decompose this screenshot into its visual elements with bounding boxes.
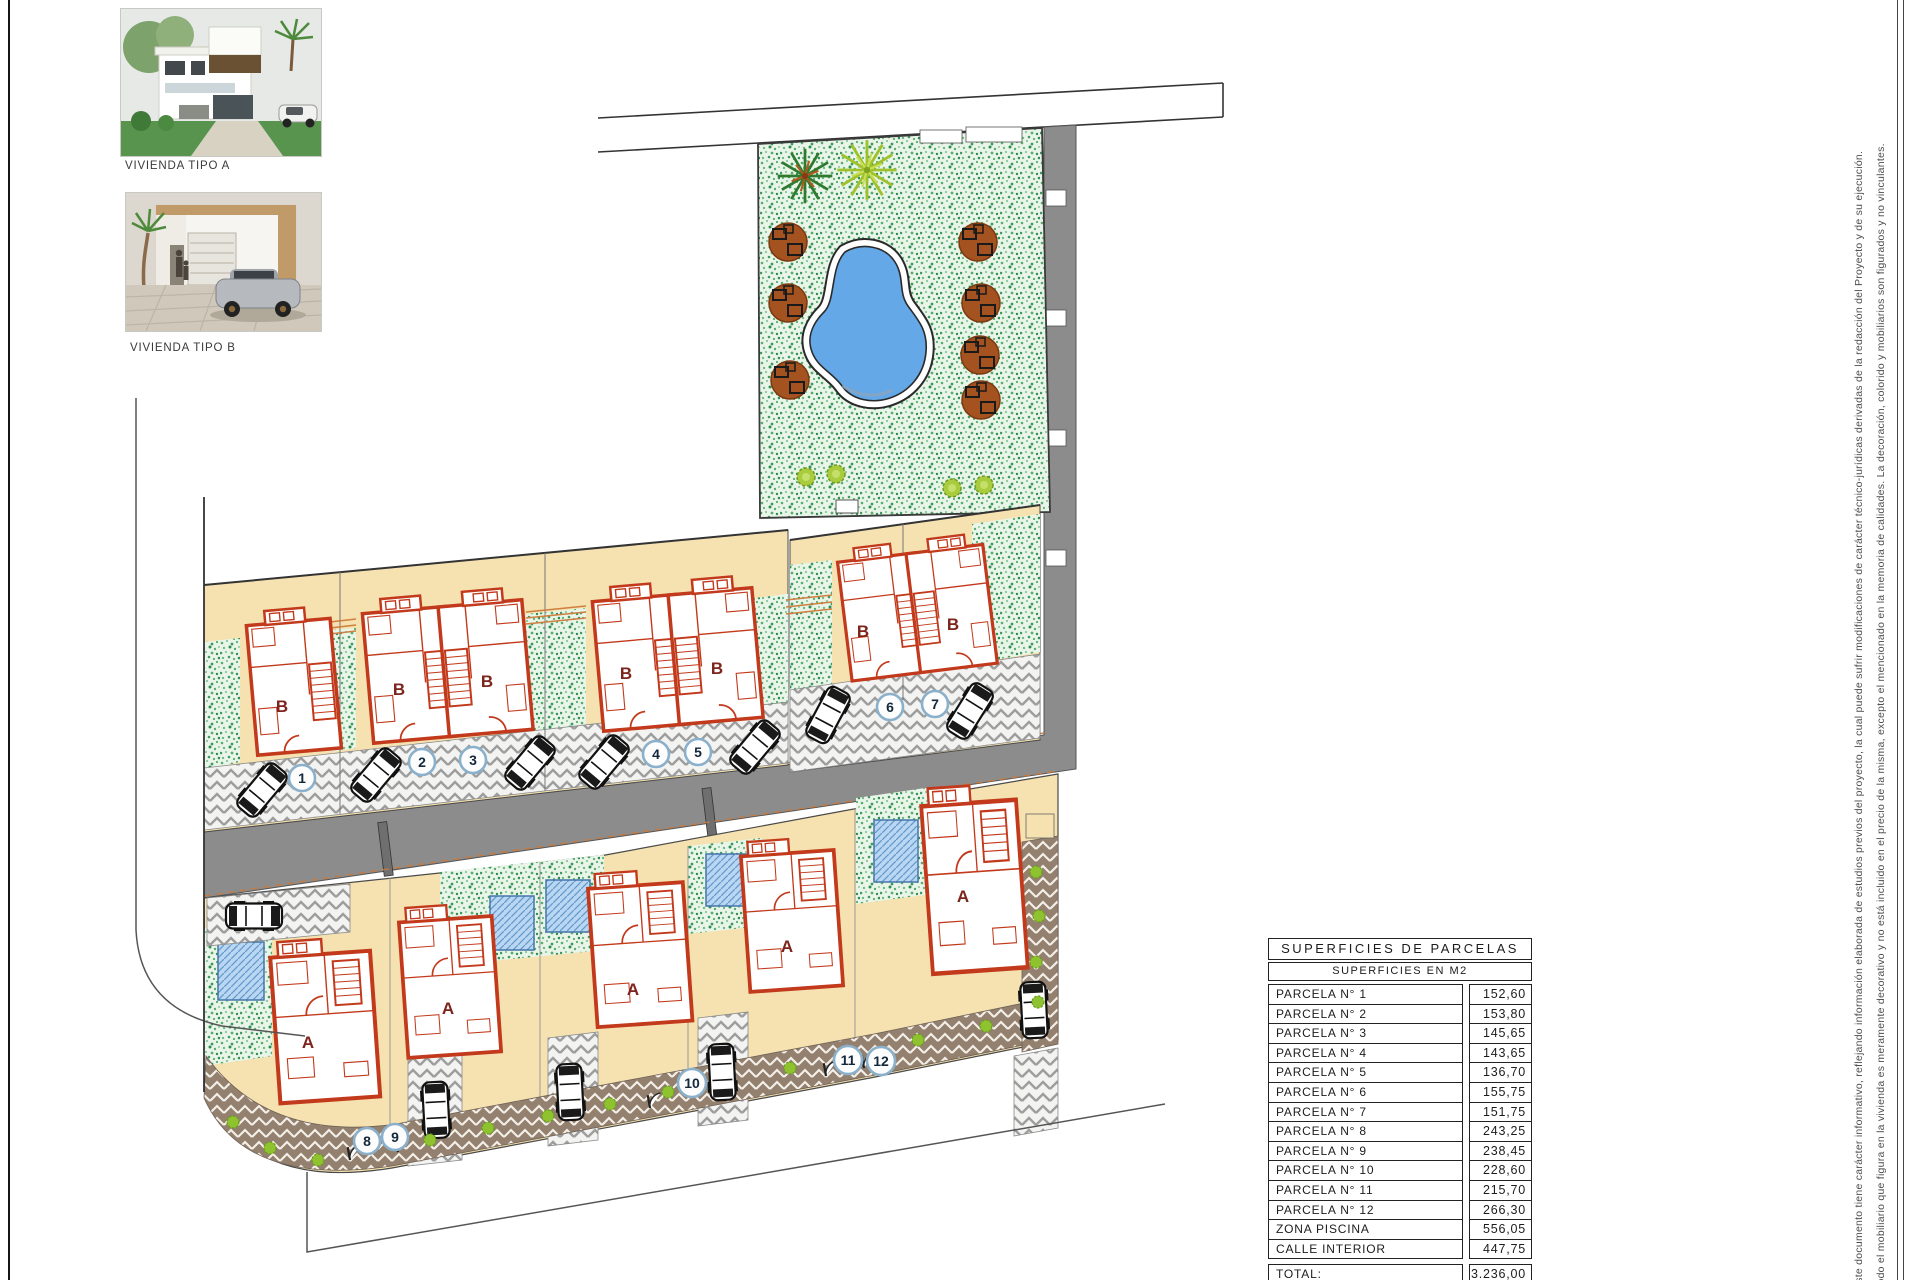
svg-text:2: 2 <box>418 754 426 770</box>
row-label: PARCELA N° 10 <box>1268 1160 1463 1181</box>
row-value: 556,05 <box>1469 1219 1532 1240</box>
plot-number-5: 5 <box>685 739 711 765</box>
lounge-seat-icon <box>769 223 807 261</box>
site-plan: B B B B B B B A A A A A 1 2 3 4 5 6 7 8 … <box>0 0 1920 1280</box>
car-icon <box>420 1081 453 1138</box>
table-row: ZONA PISCINA556,05 <box>1268 1219 1532 1240</box>
plot-number-6: 6 <box>877 694 903 720</box>
row-label: PARCELA N° 8 <box>1268 1121 1463 1142</box>
row-label: PARCELA N° 2 <box>1268 1004 1463 1025</box>
row-label: PARCELA N° 5 <box>1268 1062 1463 1083</box>
house-label-b: B <box>857 622 869 641</box>
car-icon <box>226 901 282 931</box>
row-value: 136,70 <box>1469 1062 1532 1083</box>
table-row: PARCELA N° 4143,65 <box>1268 1043 1532 1064</box>
row-value: 266,30 <box>1469 1200 1532 1221</box>
svg-text:1: 1 <box>298 770 306 786</box>
svg-text:4: 4 <box>652 746 660 762</box>
lounge-seat-icon <box>962 284 1000 322</box>
house-b-parcel-1 <box>245 605 341 755</box>
row-label: PARCELA N° 4 <box>1268 1043 1463 1064</box>
lounge-seat-icon <box>769 284 807 322</box>
row-label: PARCELA N° 9 <box>1268 1141 1463 1162</box>
house-label-b: B <box>393 680 405 699</box>
row-label: PARCELA N° 7 <box>1268 1102 1463 1123</box>
house-label-b: B <box>711 659 723 678</box>
total-value: 3.236,00 <box>1469 1264 1532 1280</box>
row-value: 215,70 <box>1469 1180 1532 1201</box>
row-value: 155,75 <box>1469 1082 1532 1103</box>
svg-text:8: 8 <box>363 1133 371 1149</box>
plot-number-2: 2 <box>409 749 435 775</box>
shrub-icon <box>797 468 815 486</box>
house-label-b: B <box>620 664 632 683</box>
row-value: 143,65 <box>1469 1043 1532 1064</box>
plot-number-4: 4 <box>643 741 669 767</box>
row-value: 153,80 <box>1469 1004 1532 1025</box>
plot-number-7: 7 <box>922 691 948 717</box>
plot-number-8: 8 <box>354 1128 380 1154</box>
house-a-parcel-12 <box>920 783 1028 974</box>
house-label-b: B <box>276 697 288 716</box>
svg-text:3: 3 <box>469 752 477 768</box>
svg-text:10: 10 <box>684 1075 700 1091</box>
table-total-row: TOTAL: 3.236,00 <box>1268 1264 1532 1280</box>
zona-piscina <box>758 127 1050 547</box>
house-label-a: A <box>302 1033 314 1052</box>
row-label: PARCELA N° 6 <box>1268 1082 1463 1103</box>
house-a-parcel-11 <box>740 836 843 992</box>
shrub-icon <box>943 479 961 497</box>
table-row: PARCELA N° 10228,60 <box>1268 1160 1532 1181</box>
svg-text:6: 6 <box>886 699 894 715</box>
car-icon <box>1018 981 1051 1038</box>
row-label: ZONA PISCINA <box>1268 1219 1463 1240</box>
table-row: PARCELA N° 12266,30 <box>1268 1200 1532 1221</box>
car-icon <box>554 1063 587 1120</box>
plot-number-3: 3 <box>460 747 486 773</box>
row-value: 151,75 <box>1469 1102 1532 1123</box>
duplex-parcels-6-7 <box>836 533 997 681</box>
table-row: PARCELA N° 9238,45 <box>1268 1141 1532 1162</box>
house-a-parcel-9 <box>398 902 501 1058</box>
row-value: 243,25 <box>1469 1121 1532 1142</box>
table-row: PARCELA N° 1152,60 <box>1268 984 1532 1005</box>
house-a-parcel-10 <box>587 868 692 1027</box>
svg-text:5: 5 <box>694 744 702 760</box>
superficies-table: SUPERFICIES DE PARCELAS SUPERFICIES EN M… <box>1268 938 1532 1280</box>
svg-text:9: 9 <box>391 1129 399 1145</box>
plot-number-11: 11 <box>834 1046 862 1074</box>
row-value: 228,60 <box>1469 1160 1532 1181</box>
row-value: 238,45 <box>1469 1141 1532 1162</box>
table-row: PARCELA N° 2153,80 <box>1268 1004 1532 1025</box>
table-row: CALLE INTERIOR447,75 <box>1268 1239 1532 1260</box>
parcel-block-6-7 <box>786 505 1040 772</box>
table-row: PARCELA N° 6155,75 <box>1268 1082 1532 1103</box>
row-label: PARCELA N° 1 <box>1268 984 1463 1005</box>
house-label-a: A <box>781 937 793 956</box>
house-label-b: B <box>481 672 493 691</box>
svg-text:11: 11 <box>841 1052 856 1068</box>
duplex-parcels-4-5 <box>591 575 763 731</box>
plot-number-9: 9 <box>382 1124 408 1150</box>
row-label: PARCELA N° 12 <box>1268 1200 1463 1221</box>
row-label: PARCELA N° 11 <box>1268 1180 1463 1201</box>
table-subtitle: SUPERFICIES EN M2 <box>1268 962 1532 981</box>
lounge-seat-icon <box>961 336 999 374</box>
svg-text:12: 12 <box>873 1053 889 1069</box>
row-label: CALLE INTERIOR <box>1268 1239 1463 1260</box>
table-row: PARCELA N° 8243,25 <box>1268 1121 1532 1142</box>
table-row: PARCELA N° 7151,75 <box>1268 1102 1532 1123</box>
table-title: SUPERFICIES DE PARCELAS <box>1268 938 1532 960</box>
table-row: PARCELA N° 11215,70 <box>1268 1180 1532 1201</box>
house-label-a: A <box>627 980 639 999</box>
total-label: TOTAL: <box>1268 1264 1463 1280</box>
house-label-b: B <box>947 615 959 634</box>
table-row: PARCELA N° 5136,70 <box>1268 1062 1532 1083</box>
row-label: PARCELA N° 3 <box>1268 1023 1463 1044</box>
row-value: 152,60 <box>1469 984 1532 1005</box>
plot-number-1: 1 <box>289 765 315 791</box>
car-icon <box>706 1043 739 1100</box>
svg-text:7: 7 <box>931 696 939 712</box>
lounge-seat-icon <box>962 381 1000 419</box>
house-a-parcel-8 <box>269 936 380 1104</box>
lounge-seat-icon <box>771 361 809 399</box>
row-value: 447,75 <box>1469 1239 1532 1260</box>
drawing-sheet: Este documento tiene carácter informativ… <box>0 0 1920 1280</box>
house-label-a: A <box>442 999 454 1018</box>
house-label-a: A <box>957 887 969 906</box>
row-value: 145,65 <box>1469 1023 1532 1044</box>
shrub-icon <box>975 476 993 494</box>
lounge-seat-icon <box>959 223 997 261</box>
shrub-icon <box>827 465 845 483</box>
plot-number-12: 12 <box>867 1047 895 1075</box>
duplex-parcels-2-3 <box>361 587 533 743</box>
table-row: PARCELA N° 3145,65 <box>1268 1023 1532 1044</box>
plot-number-10: 10 <box>678 1069 706 1097</box>
